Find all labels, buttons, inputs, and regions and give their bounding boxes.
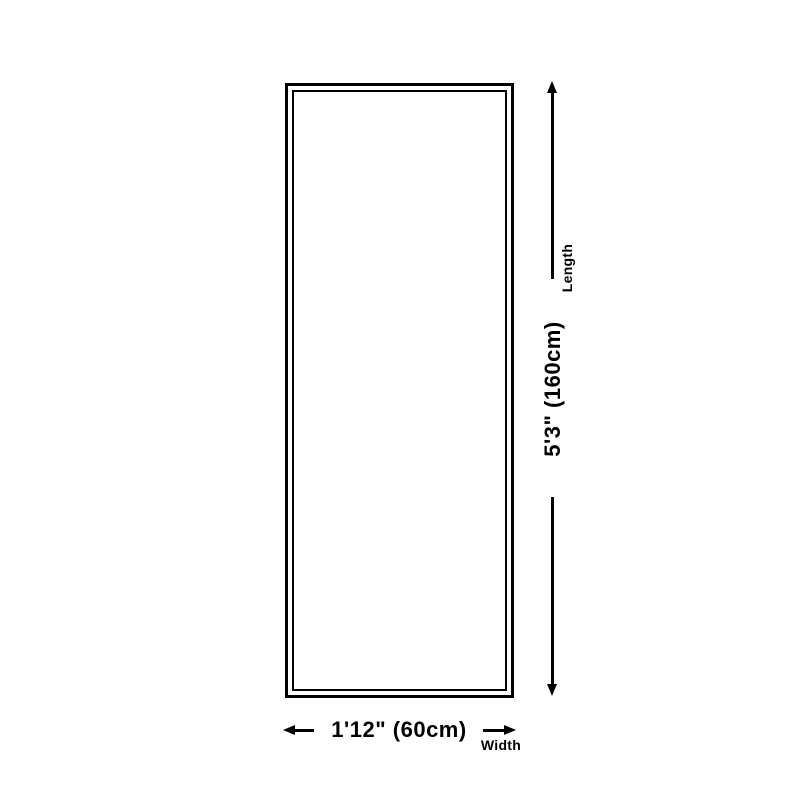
arrow-down-shaft — [551, 497, 554, 684]
arrow-up-icon — [546, 81, 558, 279]
arrow-down-icon — [546, 497, 558, 696]
arrow-left-shaft — [295, 729, 314, 732]
length-label: Length — [559, 244, 575, 292]
arrow-left-head — [283, 725, 295, 735]
product-outline — [285, 83, 514, 698]
arrow-right-head — [504, 725, 516, 735]
product-outline-inner — [292, 90, 507, 691]
arrow-down-head — [547, 684, 557, 696]
width-label: Width — [481, 737, 521, 753]
arrow-up-head — [547, 81, 557, 93]
dimension-diagram: Length 5'3" (160cm) 1'12" (60cm) Width — [0, 0, 800, 800]
arrow-up-shaft — [551, 93, 554, 279]
length-value: 5'3" (160cm) — [540, 321, 566, 456]
width-value: 1'12" (60cm) — [331, 717, 466, 743]
arrow-left-icon — [283, 724, 314, 736]
arrow-right-icon — [483, 724, 516, 736]
arrow-right-shaft — [483, 729, 504, 732]
